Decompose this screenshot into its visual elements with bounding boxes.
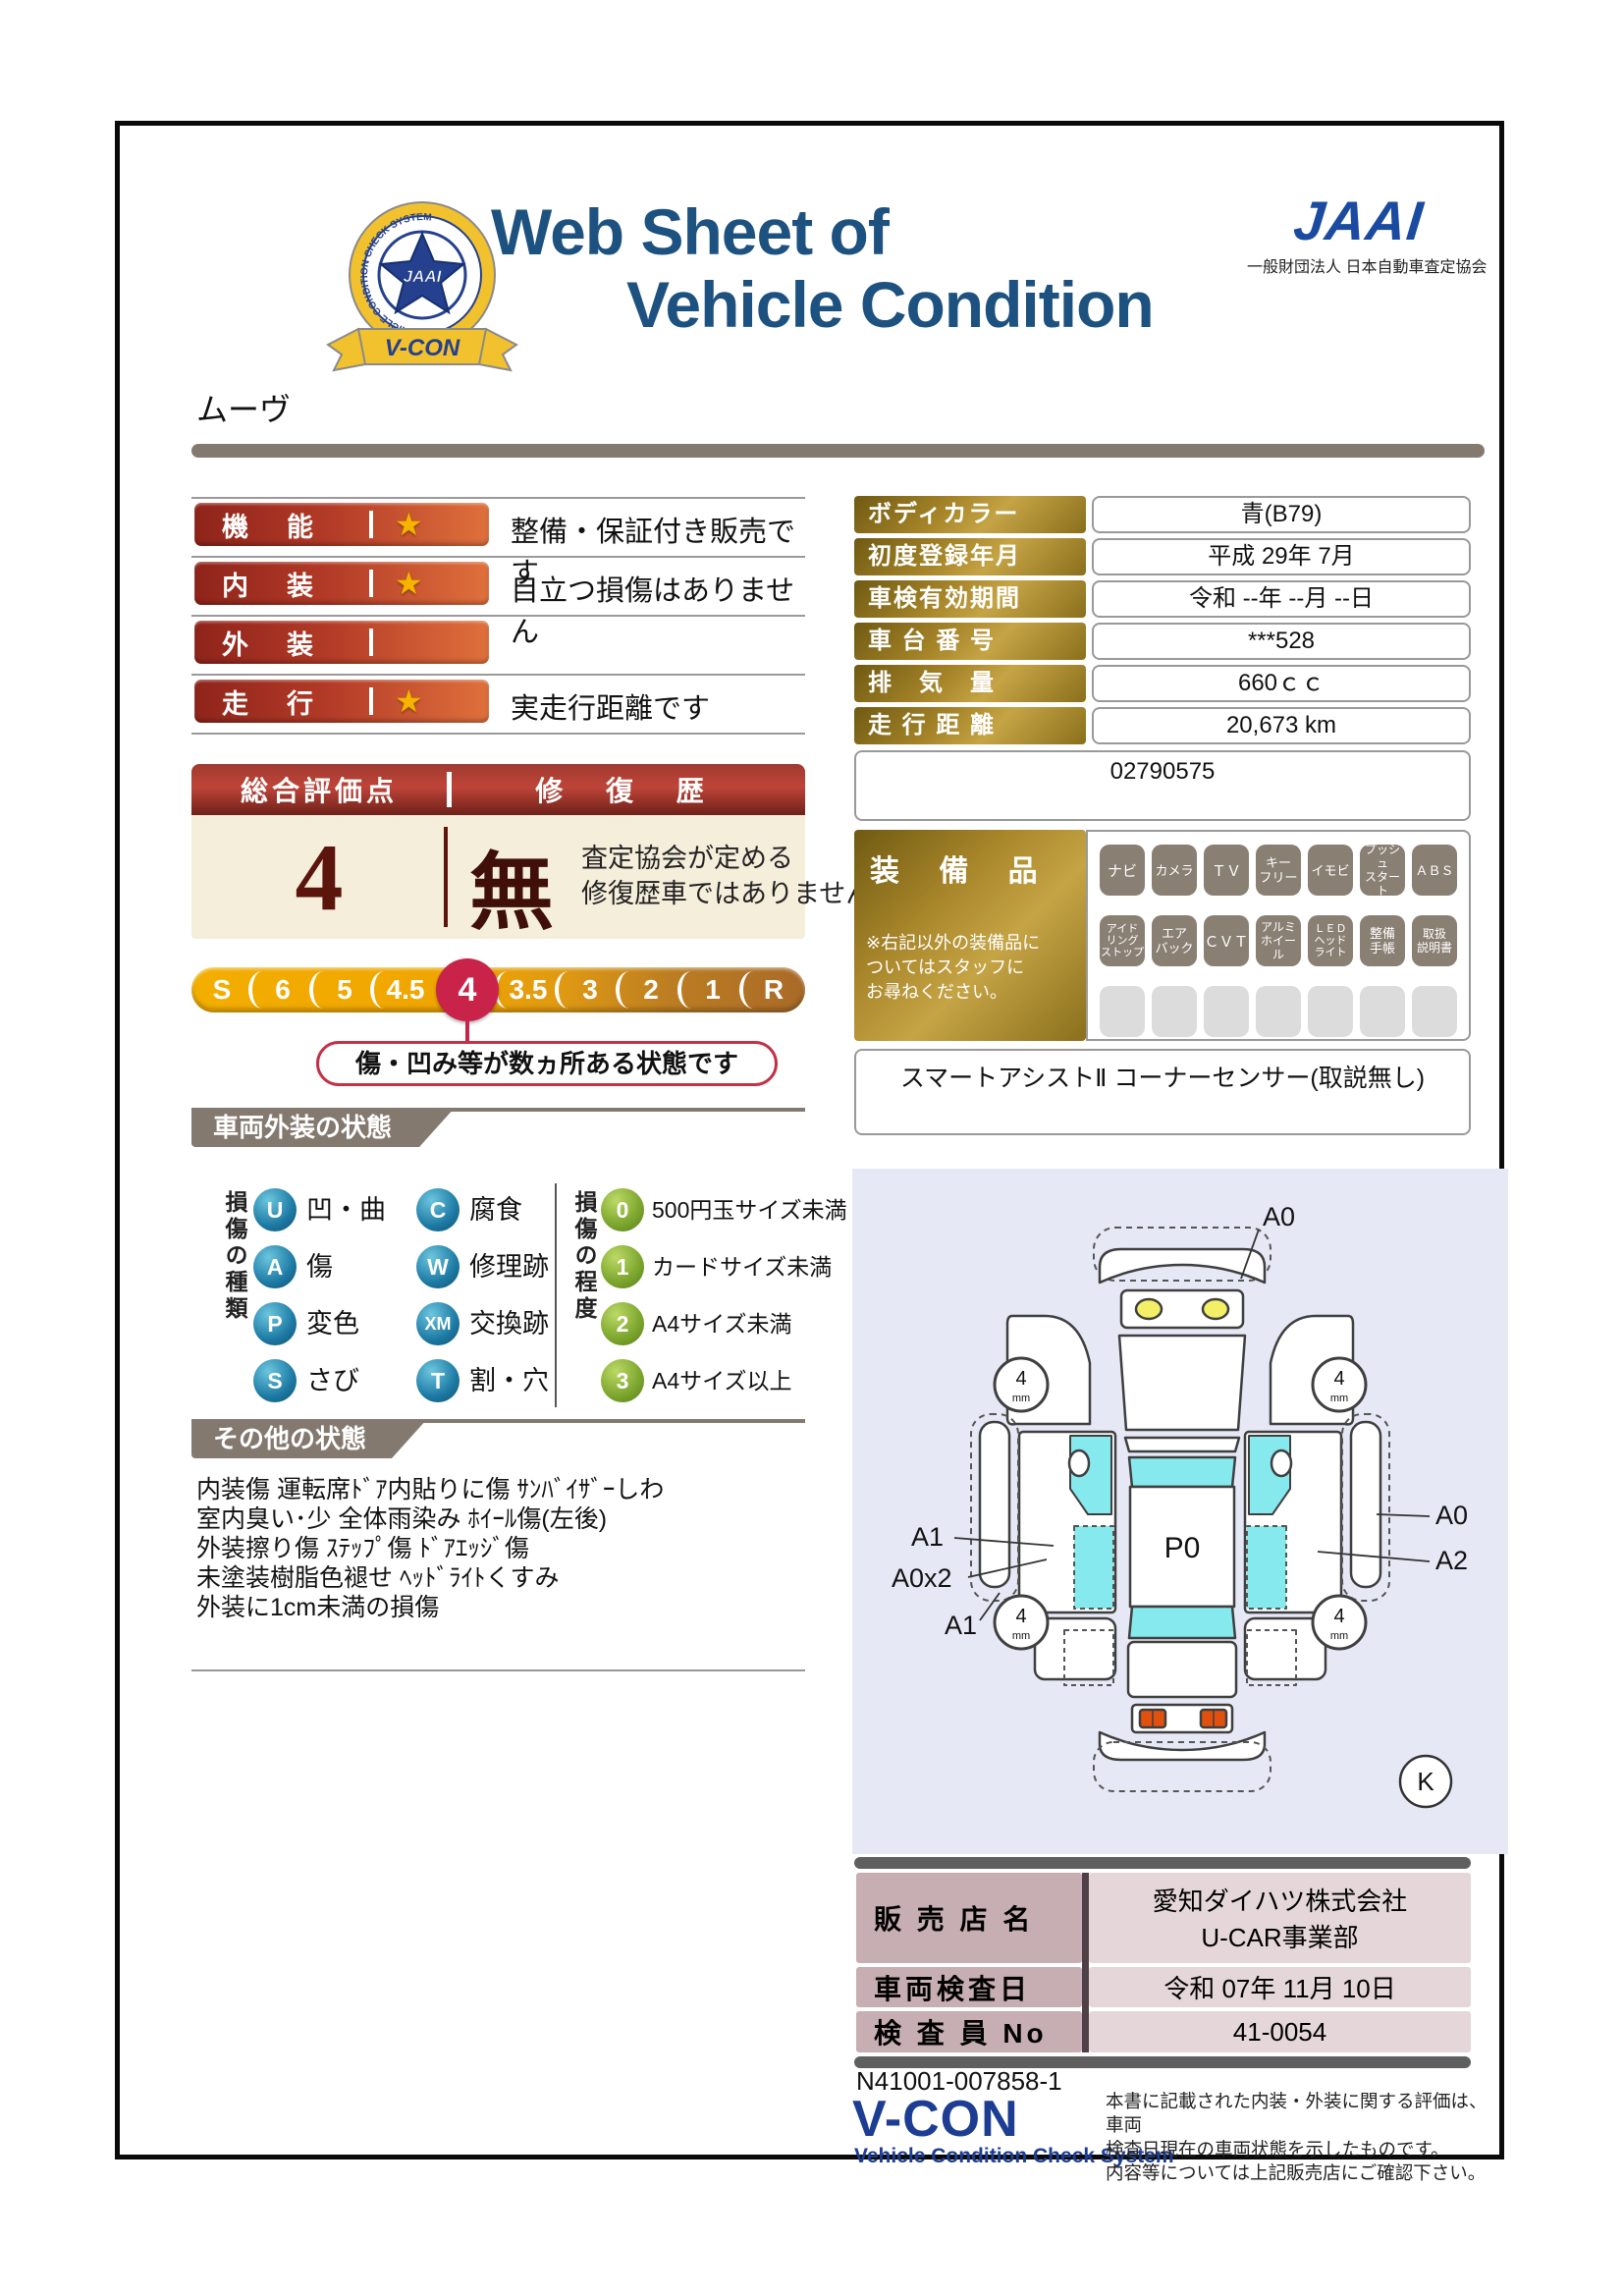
overall-score-header: 総合評価点 修 復 歴 [191,764,805,815]
equipment-badge-empty [1412,986,1457,1037]
dealer-table-divider [1082,1873,1089,2052]
equipment-badge: プッシュ スタート [1360,845,1405,896]
star-icon: ★ [395,506,423,543]
damage-type-u-label: 凹・曲 [306,1188,386,1231]
sheet-title-line2: Vehicle Condition [626,267,1154,342]
rating-label: 走 行 [194,683,369,721]
damage-type-w-label: 修理跡 [469,1245,549,1288]
equipment-badge: ナビ [1100,845,1145,896]
sheet-title-line1: Web Sheet of [491,194,889,269]
equipment-row-empty [1100,986,1457,1037]
rating-bar-mileage: 走 行 ★ [194,680,489,723]
legend-divider [555,1183,557,1407]
damage-type-xm-label: 交換跡 [469,1302,549,1345]
section-divider [191,1669,805,1671]
rating-bar-exterior: 外 装 [194,621,489,664]
detail-value-first-registration: 平成 29年 7月 [1092,538,1471,575]
damage-type-w: W [416,1245,460,1288]
equipment-badge: アイド リング ストップ [1100,915,1145,966]
vehicle-condition-sheet: VEHICLE CONDITION CHECK SYSTEM JAAI V-CO… [0,0,1623,2296]
equipment-badge-empty [1360,986,1405,1037]
grade-callout: 傷・凹み等が数ヵ所ある状態です [316,1041,778,1086]
equipment-row-1: ナビ カメラ ＴＶ キー フリー イモビ プッシュ スタート ＡＢＳ [1100,845,1457,896]
other-section-banner: その他の状態 [191,1419,427,1458]
inspection-date-value: 令和 07年 11月 10日 [1089,1967,1471,2007]
extra-equipment-box: スマートアシストⅡ コーナーセンサー(取説無し) [854,1049,1471,1135]
emblem-center-text: JAAI [404,267,443,286]
wheel-depth-value: 4 [1015,1606,1026,1627]
header-divider [191,444,1485,458]
rating-label: 機 能 [194,506,369,544]
rating-comment: 目立つ損傷はありません [511,568,805,650]
wheel-depth-value: 4 [1015,1368,1026,1390]
damage-mark-left-rear: A1 [945,1611,977,1640]
equipment-badge: キー フリー [1256,845,1301,896]
scale-arc [309,971,337,1009]
damage-degree-1: 1 [601,1245,644,1288]
scale-arc [248,971,276,1009]
reference-number-box: 02790575 [854,750,1471,821]
repair-note-line2: 修復歴車ではありません [581,876,872,911]
damage-type-a-label: 傷 [306,1245,333,1288]
repair-note: 査定協会が定める 修復歴車ではありません [581,841,872,911]
damage-degree-3: 3 [601,1359,644,1402]
jaai-logo: JAAI [1291,189,1427,252]
damage-type-a: A [253,1245,297,1288]
damage-type-t-label: 割・穴 [469,1359,549,1402]
wheel-depth-unit: mm [1330,1630,1348,1642]
overall-score-value: 4 [191,821,447,935]
equipment-row-2: アイド リング ストップ エア バック ＣＶＴ アルミ ホイール ＬＥＤ ヘッド… [1100,915,1457,966]
damage-mark-front: A0 [1263,1202,1295,1231]
wheel-depth-unit: mm [1330,1393,1348,1404]
rating-bar-divider [369,687,373,715]
damage-type-s-label: さび [306,1359,359,1402]
wheel-depth-unit: mm [1012,1393,1030,1404]
damage-type-t: T [416,1359,460,1402]
detail-label-inspection-validity: 車検有効期間 [854,580,1086,618]
vcon-logo: V-CON [852,2090,1019,2149]
rating-bar-interior: 内 装 ★ [194,562,489,605]
rating-label: 外 装 [194,624,369,662]
equipment-badge-empty [1308,986,1353,1037]
damage-mark-left-lower: A0x2 [892,1563,952,1593]
equipment-badge-empty [1204,986,1249,1037]
disclaimer-text: 本書に記載された内装・外装に関する評価は、車両 検査日現在の車両状態を示したもの… [1106,2090,1493,2186]
damage-type-c-label: 腐食 [469,1188,522,1231]
rating-bar-function: 機 能 ★ [194,503,489,546]
damage-mark-left-door: A1 [911,1522,944,1552]
detail-value-displacement: 660ｃｃ [1092,665,1471,702]
wheel-depth-value: 4 [1333,1368,1344,1390]
damage-degree-0-label: 500円玉サイズ未満 [652,1188,847,1231]
detail-value-inspection-validity: 令和 --年 --月 --日 [1092,580,1471,618]
equipment-badge: ＡＢＳ [1412,845,1457,896]
inspector-number-label: 検 査 員 No [856,2011,1082,2052]
equipment-badge: 取扱 説明書 [1412,915,1457,966]
exterior-section-banner: 車両外装の状態 [191,1108,455,1147]
other-condition-text: 内装傷 運転席ﾄﾞｱ内貼りに傷 ｻﾝﾊﾞｲｻﾞｰしわ 室内臭い･少 全体雨染み … [196,1475,805,1622]
equipment-title: 装 備 品 [870,847,1071,890]
rating-divider [191,674,805,676]
scale-arc [739,971,767,1009]
inspector-number-value: 41-0054 [1089,2011,1471,2052]
repair-flag: 無 [469,823,554,946]
damage-type-p-label: 変色 [306,1302,359,1345]
damage-degree-2-label: A4サイズ未満 [652,1302,791,1345]
scale-arc [616,971,643,1009]
equipment-badge: ＴＶ [1204,845,1249,896]
damage-degree-1-label: カードサイズ未満 [652,1245,832,1288]
wheel-depth-value: 4 [1333,1606,1344,1627]
rating-divider [191,497,805,499]
damage-mark-right-door: A2 [1435,1546,1468,1575]
damage-type-label: 損傷の種類 [218,1190,251,1402]
damage-type-p: P [253,1302,297,1345]
equipment-badge-empty [1100,986,1145,1037]
equipment-badge-empty [1152,986,1197,1037]
damage-degree-2: 2 [601,1302,644,1345]
repair-history-title: 修 復 歴 [452,764,805,815]
damage-degree-3-label: A4サイズ以上 [652,1359,791,1402]
equipment-badge: 整備 手帳 [1360,915,1405,966]
damage-degree-label: 損傷の程度 [568,1190,601,1402]
rating-bar-divider [369,511,373,538]
equipment-badge: エア バック [1152,915,1197,966]
damage-mark-right-strip: A0 [1435,1501,1468,1530]
callout-connector [465,1021,469,1041]
damage-type-s: S [253,1359,297,1402]
rating-comment: 実走行距離です [511,685,805,727]
star-icon: ★ [395,683,423,720]
rating-divider [191,615,805,617]
rating-divider [191,733,805,735]
scale-arc [677,971,705,1009]
damage-type-c: C [416,1188,460,1231]
detail-value-mileage: 20,673 km [1092,707,1471,744]
detail-value-body-color: 青(B79) [1092,496,1471,533]
overall-score-title: 総合評価点 [191,764,447,815]
equipment-badge: ＣＶＴ [1204,915,1249,966]
inspector-corner-mark: K [1417,1767,1434,1796]
star-icon: ★ [395,565,423,602]
scale-arc [370,971,398,1009]
rating-bar-divider [369,629,373,656]
damage-type-u: U [253,1188,297,1231]
selected-grade-marker: 4 [436,958,499,1021]
damage-type-xm: XM [416,1302,460,1345]
scale-arc [555,971,582,1009]
equipment-badge-empty [1256,986,1301,1037]
detail-label-displacement: 排 気 量 [854,665,1086,702]
equipment-badge: カメラ [1152,845,1197,896]
repair-note-line1: 査定協会が定める [581,841,872,876]
detail-label-first-registration: 初度登録年月 [854,538,1086,575]
equipment-badge: アルミ ホイール [1256,915,1301,966]
rating-label: 内 装 [194,565,369,603]
roof-damage-label: P0 [1164,1532,1201,1564]
detail-value-chassis-number: ***528 [1092,623,1471,660]
equipment-badge: ＬＥＤ ヘッド ライト [1308,915,1353,966]
detail-label-chassis-number: 車 台 番 号 [854,623,1086,660]
body-divider [444,827,448,927]
car-damage-diagram: 4 mm 4 mm 4 mm 4 mm P0 A0 A1 [852,1169,1508,1854]
inspection-date-label: 車両検査日 [856,1967,1082,2007]
detail-label-body-color: ボディカラー [854,496,1086,533]
equipment-badge: イモビ [1308,845,1353,896]
emblem-ribbon-text: V-CON [385,335,460,361]
detail-label-mileage: 走 行 距 離 [854,707,1086,744]
vehicle-name: ムーヴ [196,385,291,430]
rating-divider [191,556,805,558]
rating-bar-divider [369,570,373,597]
dealer-name-label: 販 売 店 名 [856,1873,1082,1963]
dealer-name-value: 愛知ダイハツ株式会社 U-CAR事業部 [1089,1873,1471,1963]
dealer-table-top-bar [854,1857,1471,1869]
equipment-note: ※右記以外の装備品に ついてはスタッフに お尋ねください。 [866,931,1077,1005]
grade-s: S [191,967,252,1012]
damage-degree-0: 0 [601,1188,644,1231]
wheel-depth-unit: mm [1012,1630,1030,1642]
jaai-subtitle: 一般財団法人 日本自動車査定協会 [1247,253,1487,277]
